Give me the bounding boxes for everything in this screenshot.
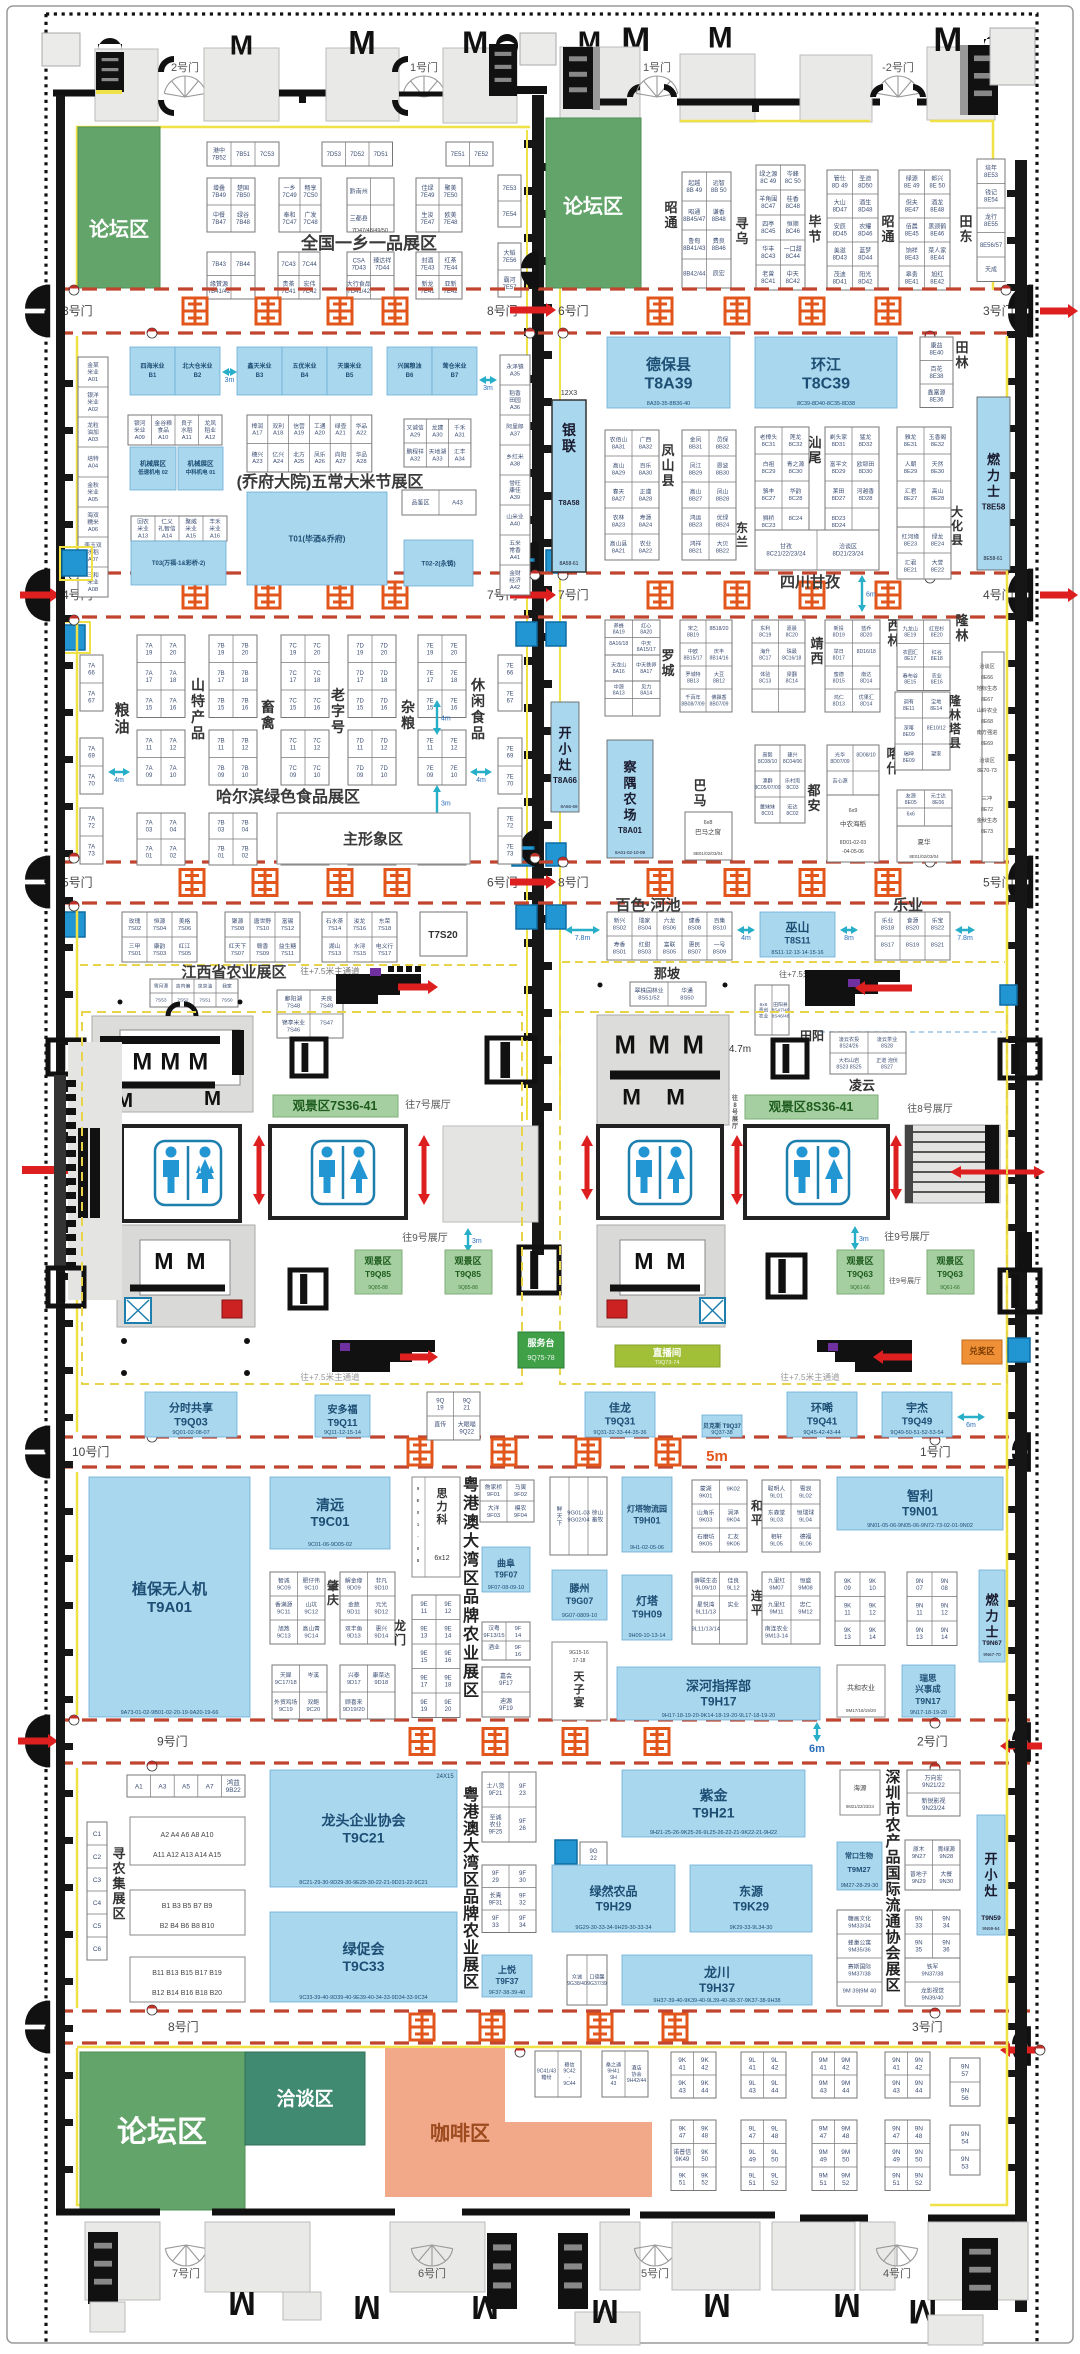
svg-text:天犀: 天犀 [280, 1672, 292, 1679]
svg-text:绿促会: 绿促会 [343, 1941, 386, 1957]
svg-text:龙行: 龙行 [985, 213, 997, 221]
svg-text:三和: 三和 [87, 571, 99, 579]
svg-text:全国一乡一品展区: 全国一乡一品展区 [300, 233, 437, 253]
svg-text:原木: 原木 [913, 1845, 925, 1853]
svg-text:47: 47 [679, 2133, 686, 2139]
svg-text:7D: 7D [356, 643, 364, 649]
svg-text:50: 50 [842, 2156, 850, 2163]
svg-text:43: 43 [893, 2088, 901, 2095]
svg-text:三甲: 三甲 [129, 943, 141, 950]
svg-text:7S11: 7S11 [281, 951, 294, 957]
svg-text:千百年: 千百年 [685, 694, 700, 701]
svg-text:8D29: 8D29 [832, 469, 846, 475]
svg-text:黑颈鹤: 黑颈鹤 [928, 223, 946, 231]
svg-text:66: 66 [88, 671, 95, 677]
svg-text:8D47: 8D47 [833, 208, 848, 214]
svg-text:雅龙: 雅龙 [905, 433, 917, 441]
svg-text:马: 马 [693, 793, 706, 808]
svg-text:9L01: 9L01 [770, 1493, 783, 1499]
svg-text:8E41: 8E41 [905, 280, 920, 286]
svg-text:8C14: 8C14 [786, 678, 798, 684]
svg-text:8A27: 8A27 [612, 496, 626, 502]
svg-text:双利: 双利 [272, 422, 284, 430]
svg-text:42: 42 [701, 2065, 709, 2072]
svg-text:管仕: 管仕 [834, 175, 846, 183]
svg-text:8E31: 8E31 [904, 442, 918, 448]
svg-text:玉香阁: 玉香阁 [929, 433, 947, 441]
svg-text:贵茶: 贵茶 [282, 280, 294, 288]
svg-text:11: 11 [218, 745, 225, 751]
svg-text:百色·河池: 百色·河池 [616, 896, 681, 914]
svg-text:区: 区 [463, 1871, 479, 1889]
svg-text:9Q61-66: 9Q61-66 [940, 1285, 960, 1291]
svg-text:菜人家: 菜人家 [928, 247, 946, 255]
svg-text:9K: 9K [701, 2057, 710, 2064]
svg-text:靖: 靖 [810, 636, 823, 651]
svg-text:9C20: 9C20 [306, 1707, 320, 1713]
svg-text:9N: 9N [961, 2156, 970, 2163]
svg-text:金蔬: 金蔬 [348, 1601, 360, 1609]
svg-text:17: 17 [357, 678, 364, 684]
svg-text:42: 42 [842, 2065, 850, 2072]
svg-text:8S19: 8S19 [906, 943, 920, 949]
svg-text:10: 10 [381, 773, 388, 779]
svg-text:A35: A35 [510, 371, 520, 377]
svg-text:7E: 7E [426, 738, 433, 744]
svg-text:24X15: 24X15 [436, 1774, 454, 1780]
svg-text:41: 41 [749, 2065, 757, 2072]
svg-text:M: M [666, 1084, 685, 1109]
svg-text:03: 03 [146, 828, 153, 834]
svg-text:19: 19 [421, 1707, 428, 1713]
svg-text:8B45/47: 8B45/47 [683, 217, 706, 223]
svg-text:9N: 9N [915, 2057, 924, 2064]
svg-text:富平文: 富平文 [830, 460, 848, 468]
svg-text:8C08/10: 8C08/10 [758, 759, 777, 765]
svg-text:电义行: 电义行 [376, 942, 394, 950]
svg-text:42: 42 [771, 2065, 779, 2072]
svg-text:银河: 银河 [134, 419, 146, 427]
svg-text:澳: 澳 [463, 1512, 480, 1531]
svg-text:外贸鸡场: 外贸鸡场 [274, 1698, 297, 1706]
svg-text:T9N01: T9N01 [902, 1505, 938, 1519]
svg-text:鲁甸: 鲁甸 [688, 237, 700, 245]
svg-text:米业: 米业 [137, 525, 149, 533]
svg-text:M: M [708, 22, 733, 55]
svg-text:高山: 高山 [690, 488, 702, 496]
svg-text:7D: 7D [380, 766, 388, 772]
svg-text:力: 力 [987, 468, 1000, 483]
svg-text:灯塔: 灯塔 [636, 1594, 659, 1608]
svg-text:澳: 澳 [463, 1819, 480, 1838]
svg-text:老樟头: 老樟头 [760, 433, 778, 441]
svg-text:县: 县 [661, 473, 674, 488]
svg-text:9L: 9L [749, 2172, 757, 2179]
svg-text:M: M [132, 1048, 152, 1075]
svg-text:9L11/13/14: 9L11/13/14 [691, 1627, 720, 1633]
svg-text:7C: 7C [313, 671, 321, 677]
svg-text:高山青: 高山青 [303, 1625, 321, 1633]
svg-text:节: 节 [808, 229, 821, 244]
svg-text:9F19: 9F19 [499, 1706, 513, 1712]
svg-text:8号门: 8号门 [168, 2019, 199, 2034]
svg-text:16: 16 [445, 1658, 452, 1664]
svg-text:红谷: 红谷 [932, 649, 942, 656]
svg-text:26: 26 [519, 1826, 526, 1832]
svg-text:安: 安 [807, 798, 820, 813]
svg-text:8B24: 8B24 [716, 522, 730, 528]
svg-text:往9号展厅: 往9号展厅 [402, 1231, 448, 1244]
svg-text:力: 力 [985, 1609, 998, 1624]
svg-text:闲: 闲 [471, 693, 485, 709]
svg-text:8A58-61: 8A58-61 [560, 561, 579, 567]
svg-text:汕: 汕 [808, 435, 821, 450]
svg-text:50: 50 [915, 2156, 923, 2163]
svg-text:9F17: 9F17 [499, 1681, 513, 1687]
svg-text:7A: 7A [145, 643, 152, 649]
svg-text:7C: 7C [289, 643, 297, 649]
svg-text:18: 18 [242, 678, 249, 684]
svg-text:M: M [634, 1248, 653, 1274]
svg-text:7D: 7D [380, 698, 388, 704]
svg-text:黔南州: 黔南州 [350, 188, 368, 196]
svg-text:展: 展 [463, 1663, 480, 1681]
svg-text:华通: 华通 [681, 987, 693, 995]
svg-text:10: 10 [242, 773, 249, 779]
svg-text:8S17: 8S17 [881, 943, 895, 949]
svg-text:9N30: 9N30 [939, 1879, 953, 1885]
svg-text:9L04: 9L04 [799, 1517, 813, 1523]
svg-text:8A16: 8A16 [613, 669, 625, 675]
svg-text:8E73: 8E73 [981, 829, 993, 835]
svg-text:西: 西 [810, 651, 823, 666]
svg-text:8B48: 8B48 [712, 217, 727, 223]
svg-text:7B: 7B [217, 821, 224, 827]
svg-text:9L: 9L [771, 2057, 779, 2064]
svg-text:山米业: 山米业 [506, 513, 524, 521]
svg-text:9M13-14: 9M13-14 [765, 1633, 789, 1639]
svg-text:8C47: 8C47 [761, 204, 776, 210]
svg-text:7E43: 7E43 [420, 265, 435, 271]
svg-text:美格: 美格 [179, 917, 191, 925]
svg-text:A22: A22 [356, 431, 366, 437]
svg-text:桂香: 桂香 [787, 195, 799, 203]
svg-text:7S10: 7S10 [256, 926, 270, 932]
svg-text:9Q: 9Q [436, 1399, 444, 1405]
svg-text:中农海稻: 中农海稻 [840, 819, 867, 828]
svg-text:主形象区: 主形象区 [343, 830, 403, 848]
svg-text:昭: 昭 [881, 214, 894, 229]
svg-text:广西: 广西 [640, 436, 652, 444]
svg-text:B6: B6 [406, 373, 414, 379]
svg-text:隅: 隅 [623, 776, 636, 791]
svg-text:8E28: 8E28 [931, 496, 945, 502]
svg-text:8C03: 8C03 [786, 785, 798, 791]
svg-text:9N37/38: 9N37/38 [922, 1971, 944, 1977]
svg-text:华韵: 华韵 [790, 487, 802, 495]
svg-text:9N: 9N [915, 2149, 924, 2156]
svg-text:9Q37-38: 9Q37-38 [711, 1430, 732, 1436]
svg-text:绿之源: 绿之源 [759, 170, 777, 178]
svg-text:辰宏: 辰宏 [713, 270, 725, 278]
svg-text:千禾: 千禾 [454, 424, 466, 432]
svg-text:8D07/09: 8D07/09 [830, 759, 849, 765]
svg-text:星悦湾: 星悦湾 [697, 1601, 715, 1609]
svg-text:嘉晨: 嘉晨 [787, 625, 797, 632]
svg-text:昭: 昭 [664, 200, 677, 215]
svg-text:7E: 7E [450, 698, 457, 704]
svg-text:智利: 智利 [907, 1489, 933, 1504]
svg-text:8C30: 8C30 [789, 469, 803, 475]
svg-text:8E32: 8E32 [931, 442, 945, 448]
svg-text:9K: 9K [844, 1579, 851, 1585]
svg-text:8B07/09: 8B07/09 [710, 701, 729, 707]
svg-text:67: 67 [88, 699, 95, 705]
svg-text:畅享: 畅享 [304, 184, 316, 192]
svg-text:凤: 凤 [661, 443, 674, 458]
svg-text:田阳县: 田阳县 [773, 1001, 788, 1008]
svg-text:高毅: 高毅 [762, 752, 772, 759]
svg-text:9D14: 9D14 [374, 1633, 389, 1639]
svg-text:水浔: 水浔 [354, 942, 366, 950]
svg-text:小: 小 [984, 1868, 997, 1883]
svg-text:9E: 9E [420, 1700, 427, 1706]
svg-text:德保县: 德保县 [646, 356, 691, 374]
svg-text:T8A01: T8A01 [618, 826, 643, 835]
svg-text:M: M [348, 24, 376, 61]
svg-text:洽谈区: 洽谈区 [979, 756, 995, 764]
svg-text:44: 44 [915, 2088, 923, 2095]
svg-text:A19: A19 [294, 431, 304, 437]
svg-text:9F37-38-39-40: 9F37-38-39-40 [489, 1990, 525, 1996]
svg-text:薑妹妹: 薑妹妹 [760, 804, 775, 811]
svg-text:8D48: 8D48 [858, 208, 873, 214]
svg-text:9M33/34: 9M33/34 [848, 1923, 871, 1929]
svg-text:往7号展厅: 往7号展厅 [405, 1098, 451, 1111]
svg-text:观景区7S36-41: 观景区7S36-41 [293, 1099, 378, 1113]
svg-text:15: 15 [290, 705, 297, 711]
svg-text:8D44: 8D44 [858, 256, 873, 262]
svg-text:9H17-18-19-20-9K14-18-19-20-9L: 9H17-18-19-20-9K14-18-19-20-9L17-18-19-2… [662, 1713, 775, 1719]
svg-text:三都县: 三都县 [350, 215, 368, 223]
svg-text:塔: 塔 [949, 721, 962, 736]
svg-text:B1: B1 [149, 373, 157, 379]
svg-text:7A: 7A [145, 766, 152, 772]
svg-text:宏达: 宏达 [787, 804, 797, 811]
svg-text:金秋: 金秋 [87, 481, 99, 489]
svg-text:21: 21 [463, 1406, 470, 1412]
svg-text:15: 15 [218, 705, 225, 711]
svg-text:通: 通 [885, 1913, 900, 1930]
svg-text:14: 14 [869, 1635, 876, 1641]
svg-text:7C47: 7C47 [282, 220, 297, 226]
svg-text:巴: 巴 [693, 778, 706, 793]
svg-text:贝克斯 T9Q37: 贝克斯 T9Q37 [703, 1422, 742, 1430]
svg-text:11: 11 [916, 1610, 923, 1616]
svg-text:惠民: 惠民 [689, 941, 701, 949]
svg-text:T9Q11: T9Q11 [327, 1418, 357, 1429]
svg-text:赣香: 赣香 [257, 942, 269, 950]
svg-text:常香: 常香 [509, 546, 521, 554]
svg-text:7B: 7B [241, 671, 248, 677]
svg-text:7B51: 7B51 [236, 152, 251, 158]
svg-text:蒙湖: 蒙湖 [700, 1485, 712, 1493]
svg-text:7A: 7A [169, 698, 176, 704]
svg-text:兰: 兰 [736, 534, 748, 549]
svg-text:小: 小 [558, 742, 571, 757]
svg-text:植保无人机: 植保无人机 [132, 1580, 207, 1598]
svg-text:8C42: 8C42 [786, 279, 801, 285]
svg-text:9C13: 9C13 [277, 1633, 291, 1639]
svg-text:5号门: 5号门 [62, 875, 93, 890]
svg-text:起越: 起越 [688, 179, 700, 187]
svg-text:8E47: 8E47 [905, 208, 920, 214]
svg-text:A7: A7 [206, 1783, 214, 1790]
svg-text:莺仓米业: 莺仓米业 [442, 362, 466, 370]
svg-text:9M: 9M [819, 2149, 828, 2156]
svg-text:9M: 9M [841, 2149, 850, 2156]
svg-text:11: 11 [427, 745, 434, 751]
svg-text:7C48: 7C48 [303, 220, 318, 226]
svg-text:赛斯国际: 赛斯国际 [848, 1963, 871, 1971]
svg-text:9Q85-88: 9Q85-88 [458, 1285, 478, 1291]
svg-text:稻香: 稻香 [509, 389, 521, 397]
svg-text:9K05: 9K05 [699, 1541, 713, 1547]
svg-text:9F02: 9F02 [514, 1492, 527, 1498]
svg-text:乐宝: 乐宝 [932, 917, 944, 925]
svg-text:至诚: 至诚 [489, 1814, 501, 1822]
svg-text:港: 港 [463, 1494, 480, 1513]
svg-text:A30: A30 [432, 432, 442, 438]
svg-text:圣迪: 圣迪 [859, 175, 871, 183]
svg-text:港中: 港中 [213, 147, 225, 155]
svg-text:7A: 7A [88, 817, 95, 823]
svg-text:7号门: 7号门 [172, 2266, 200, 2280]
svg-text:01: 01 [146, 854, 153, 860]
svg-text:8D17: 8D17 [833, 655, 845, 661]
svg-text:02: 02 [170, 854, 177, 860]
svg-text:市: 市 [885, 1800, 900, 1818]
svg-text:T9Q03: T9Q03 [174, 1417, 208, 1429]
svg-text:19: 19 [437, 1406, 444, 1412]
svg-text:8D43: 8D43 [833, 256, 848, 262]
svg-text:8A21: 8A21 [612, 548, 626, 554]
svg-text:A37: A37 [510, 431, 520, 437]
svg-text:20: 20 [381, 650, 388, 656]
svg-text:7E: 7E [426, 643, 433, 649]
svg-text:南方强进: 南方强进 [977, 728, 998, 736]
svg-text:9K02: 9K02 [726, 1487, 740, 1493]
svg-text:48: 48 [842, 2133, 850, 2140]
svg-text:农耀: 农耀 [859, 223, 871, 231]
svg-text:中天鉄卵: 中天鉄卵 [636, 662, 656, 669]
svg-text:厅: 厅 [732, 1122, 738, 1130]
svg-text:银: 银 [562, 422, 577, 438]
svg-text:14: 14 [515, 1633, 522, 1639]
svg-text:9H21-25-26-9K25-26-9L25-26-22-: 9H21-25-26-9K25-26-9L25-26-22-21-9K22-21… [650, 1830, 777, 1836]
svg-text:A29: A29 [410, 432, 420, 438]
svg-text:莱田: 莱田 [833, 487, 845, 495]
svg-text:7A: 7A [169, 821, 176, 827]
svg-text:号: 号 [331, 719, 345, 735]
svg-text:A06: A06 [88, 527, 98, 533]
svg-text:7D51: 7D51 [374, 152, 389, 158]
svg-text:北大仓米业: 北大仓米业 [182, 362, 212, 370]
svg-text:聪明人: 聪明人 [768, 1485, 786, 1493]
svg-text:酒龙: 酒龙 [931, 199, 943, 207]
svg-text:通: 通 [664, 215, 677, 230]
svg-text:大石山岩: 大石山岩 [839, 1057, 859, 1064]
svg-text:9N: 9N [961, 2088, 970, 2095]
svg-text:中餐: 中餐 [213, 211, 225, 219]
svg-text:佳龙: 佳龙 [609, 1401, 631, 1415]
svg-text:石磨坊: 石磨坊 [697, 1533, 715, 1541]
svg-text:7B: 7B [241, 847, 248, 853]
svg-text:51: 51 [820, 2180, 828, 2187]
svg-text:一口甜: 一口甜 [784, 245, 802, 253]
svg-text:9F: 9F [492, 1916, 499, 1922]
svg-text:8A23: 8A23 [612, 522, 626, 528]
svg-text:亿兴: 亿兴 [272, 450, 284, 458]
svg-text:70: 70 [507, 782, 514, 788]
svg-text:北方: 北方 [293, 450, 305, 458]
svg-text:18: 18 [170, 678, 177, 684]
svg-text:老: 老 [331, 687, 345, 703]
svg-text:8B 49: 8B 49 [686, 188, 702, 194]
svg-text:甘孜: 甘孜 [780, 543, 792, 551]
svg-text:8A13: 8A13 [613, 691, 625, 697]
svg-text:倪夫: 倪夫 [906, 199, 918, 207]
svg-text:汉粤: 汉粤 [488, 1624, 500, 1632]
svg-text:T9Q63: T9Q63 [937, 1269, 963, 1279]
svg-text:7B: 7B [217, 698, 224, 704]
svg-text:T9Q63: T9Q63 [847, 1269, 873, 1279]
svg-text:7E: 7E [450, 738, 457, 744]
svg-text:大: 大 [951, 504, 963, 519]
svg-text:CSA: CSA [353, 258, 365, 264]
svg-text:聚美: 聚美 [444, 184, 456, 192]
svg-text:健香: 健香 [689, 917, 701, 925]
svg-text:天地湖: 天地湖 [429, 448, 447, 456]
svg-text:9F04: 9F04 [514, 1513, 528, 1519]
svg-text:禽: 禽 [260, 715, 276, 731]
svg-text:M: M [622, 1084, 641, 1109]
svg-text:11: 11 [421, 1609, 428, 1615]
svg-text:香满源: 香满源 [275, 1601, 293, 1609]
svg-text:8D01-02-03: 8D01-02-03 [840, 840, 867, 846]
svg-text:8A16/18: 8A16/18 [609, 641, 628, 647]
svg-text:普地子: 普地子 [910, 1870, 928, 1878]
svg-text:灶: 灶 [984, 1884, 997, 1899]
svg-text:天良: 天良 [321, 995, 333, 1003]
svg-text:青之源: 青之源 [787, 460, 805, 468]
svg-text:中欧: 中欧 [688, 648, 698, 655]
svg-text:品鉴区: 品鉴区 [411, 499, 429, 507]
svg-text:锦享米业: 锦享米业 [282, 1019, 305, 1027]
svg-text:论坛区: 论坛区 [117, 2116, 207, 2149]
svg-text:9L11/13: 9L11/13 [695, 1609, 716, 1615]
svg-text:18: 18 [451, 678, 458, 684]
svg-text:中天: 中天 [787, 270, 799, 278]
svg-text:8C01: 8C01 [761, 811, 773, 817]
svg-text:绿龙: 绿龙 [932, 533, 944, 541]
svg-text:金秋生态: 金秋生态 [977, 816, 998, 824]
svg-text:19: 19 [357, 650, 364, 656]
svg-text:7.8m: 7.8m [957, 935, 973, 942]
svg-text:9L: 9L [771, 2125, 779, 2132]
svg-text:12: 12 [242, 745, 249, 751]
svg-text:15: 15 [146, 705, 153, 711]
